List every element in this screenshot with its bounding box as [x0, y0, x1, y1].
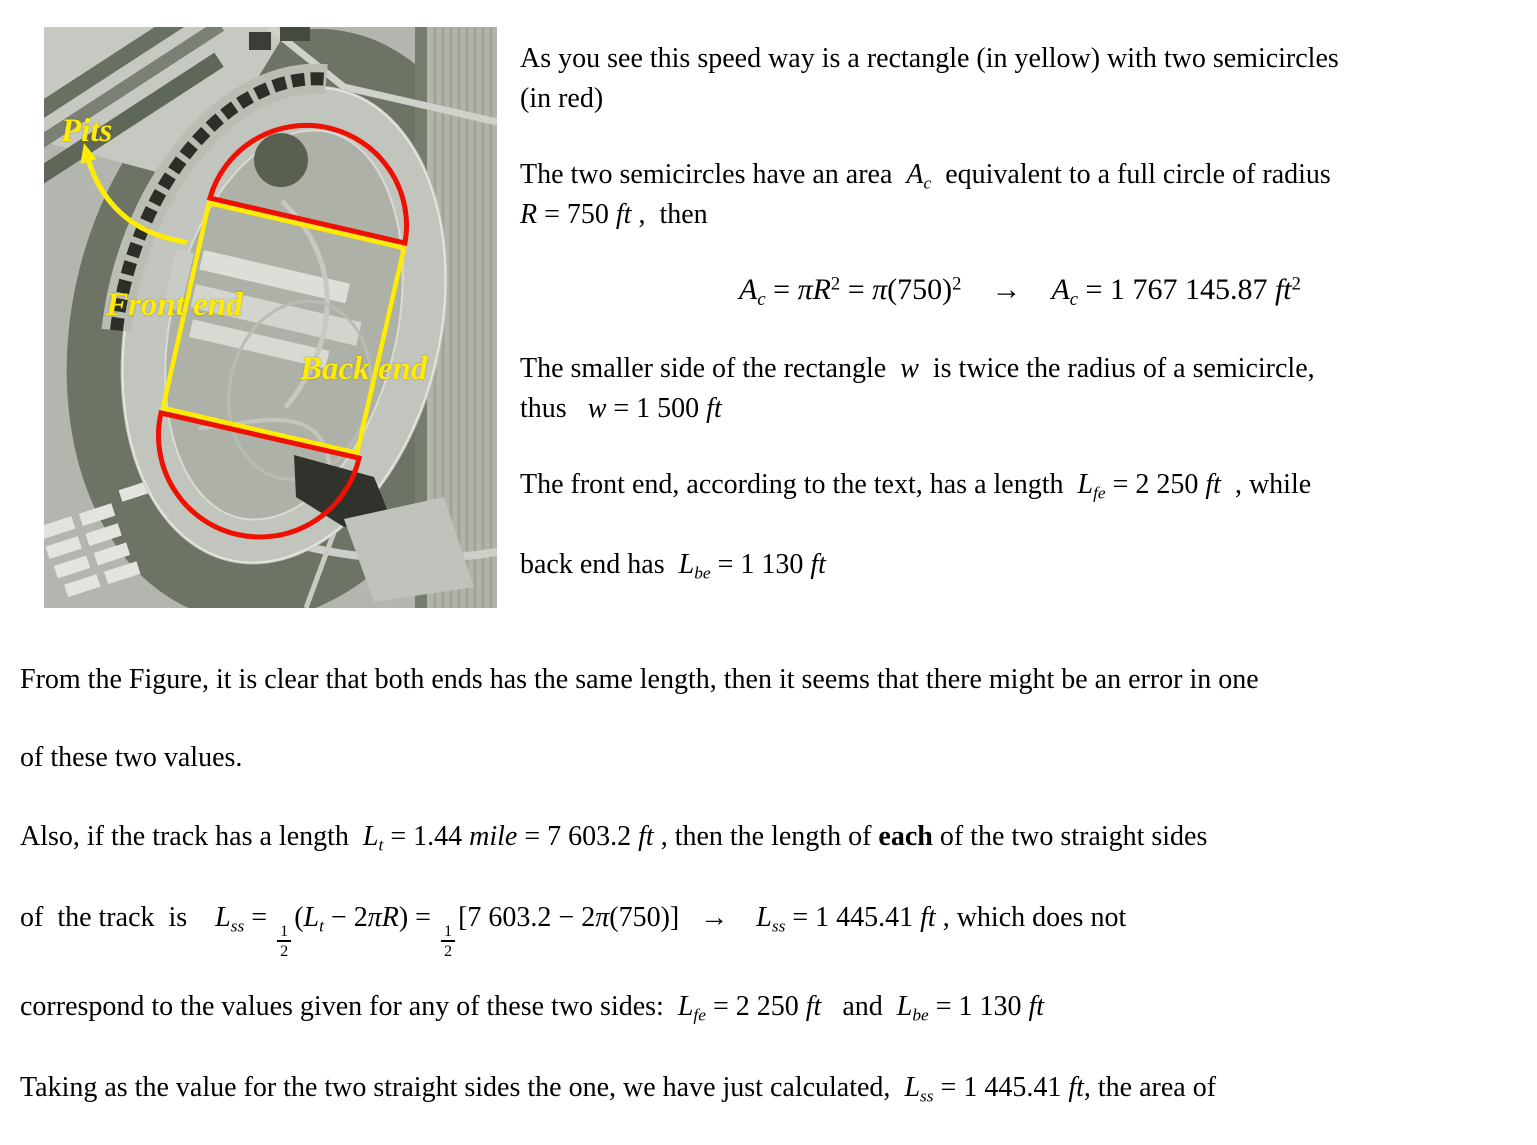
document-page: Pits Front end Back end As you see this … [0, 0, 1537, 1145]
text-segment: ft [810, 549, 826, 580]
text-segment: = [840, 273, 872, 306]
text-line-figure-remark-2: of these two values. [20, 741, 242, 775]
text-segment: equivalent to a full circle of radius [931, 159, 1331, 190]
text-segment: L [363, 821, 379, 852]
text-segment: w [900, 353, 919, 384]
text-segment: = 1 500 [606, 393, 706, 424]
text-line-tracklength-2: of the track is Lss = 12(Lt − 2πR) = 12[… [20, 901, 1126, 960]
text-segment: ft [1068, 1072, 1084, 1103]
text-segment: thus [520, 393, 588, 424]
text-segment: c [757, 289, 765, 310]
text-segment: L [756, 902, 772, 933]
text-line-semicircles-2: R = 750 ft , then [520, 198, 708, 232]
text-segment: ft [1205, 469, 1221, 500]
text-segment: , which does not [936, 902, 1127, 933]
pits-label: Pits [61, 115, 112, 148]
text-segment: As you see this speed way is a rectangle… [520, 43, 1339, 74]
text-line-backend: back end has Lbe = 1 130 ft [520, 548, 826, 584]
text-segment: mile [469, 821, 517, 852]
equation-area-circle: Ac = πR2 = π(750)2 → Ac = 1 767 145.87 f… [540, 272, 1500, 311]
text-segment: of these two values. [20, 742, 242, 773]
back-end-label: Back end [300, 353, 427, 386]
text-segment: L [215, 902, 231, 933]
text-segment: L [897, 991, 913, 1022]
text-segment: ) = [399, 902, 438, 933]
text-segment: 2 [1292, 274, 1301, 295]
text-segment: Taking as the value for the two straight… [20, 1072, 904, 1103]
building-top [249, 32, 271, 50]
text-segment: ft [638, 821, 654, 852]
text-segment: A [906, 159, 923, 190]
text-segment: = 1 445.41 [785, 902, 920, 933]
text-segment: w [588, 393, 607, 424]
text-line-tracklength-1: Also, if the track has a length Lt = 1.4… [20, 820, 1207, 856]
text-segment: The two semicircles have an area [520, 159, 906, 190]
speedway-aerial-figure: Pits Front end Back end [44, 27, 497, 608]
text-segment: ss [920, 1087, 934, 1106]
text-segment: be [694, 564, 710, 583]
text-line-intro-2: (in red) [520, 82, 603, 116]
text-segment: , while [1221, 469, 1311, 500]
text-segment: ft [920, 902, 936, 933]
text-segment: = 1 130 [711, 549, 811, 580]
text-segment: L [679, 549, 695, 580]
text-segment: ft [1029, 991, 1045, 1022]
text-segment: is twice the radius of a semicircle, [919, 353, 1315, 384]
text-line-tracklength-3: correspond to the values given for any o… [20, 990, 1044, 1026]
text-segment: ( [294, 902, 303, 933]
text-segment: L [1077, 469, 1093, 500]
text-segment: and [821, 991, 896, 1022]
text-segment: ss [231, 917, 245, 936]
text-segment: L [304, 902, 320, 933]
text-segment: correspond to the values given for any o… [20, 991, 678, 1022]
text-segment: be [912, 1006, 928, 1025]
text-segment: (750) [887, 273, 952, 306]
text-segment: − 2 [324, 902, 368, 933]
text-line-width-2: thus w = 1 500 ft [520, 392, 722, 426]
text-segment: , then [631, 199, 707, 230]
text-segment: = 2 250 [706, 991, 806, 1022]
text-segment: = 1 130 [929, 991, 1029, 1022]
text-segment: = 750 [537, 199, 616, 230]
text-segment: (750)] → [609, 902, 756, 933]
text-segment: ss [772, 917, 786, 936]
text-segment: → [961, 273, 1051, 306]
text-segment: = 1.44 [383, 821, 469, 852]
fraction: 12 [277, 923, 291, 959]
front-end-label: Front end [106, 289, 243, 322]
text-segment: ft [616, 199, 632, 230]
fraction: 12 [441, 923, 455, 959]
text-segment: back end has [520, 549, 679, 580]
text-segment: L [678, 991, 694, 1022]
text-segment: L [904, 1072, 920, 1103]
text-line-intro-1: As you see this speed way is a rectangle… [520, 42, 1339, 76]
text-segment: = [244, 902, 274, 933]
text-segment: each [878, 821, 932, 852]
text-segment: πR [798, 273, 831, 306]
text-segment: R [520, 199, 537, 230]
text-segment: (in red) [520, 83, 603, 114]
text-segment: The front end, according to the text, ha… [520, 469, 1077, 500]
text-segment: A [1051, 273, 1069, 306]
text-line-frontend: The front end, according to the text, ha… [520, 468, 1311, 504]
building-top2 [280, 27, 310, 41]
text-segment: The smaller side of the rectangle [520, 353, 900, 384]
text-segment: = 1 767 145.87 [1078, 273, 1275, 306]
text-segment: = 1 445.41 [934, 1072, 1069, 1103]
text-segment: [7 603.2 − 2 [458, 902, 595, 933]
text-segment: A [739, 273, 757, 306]
text-segment: π [872, 273, 887, 306]
text-line-figure-remark-1: From the Figure, it is clear that both e… [20, 663, 1259, 697]
text-segment: ft [706, 393, 722, 424]
text-line-width-1: The smaller side of the rectangle w is t… [520, 352, 1315, 386]
text-segment: = 2 250 [1106, 469, 1206, 500]
text-segment: of the two straight sides [933, 821, 1208, 852]
text-segment: , the area of [1084, 1072, 1216, 1103]
text-segment: π [595, 902, 609, 933]
text-segment: Also, if the track has a length [20, 821, 363, 852]
text-line-semicircles-1: The two semicircles have an area Ac equi… [520, 158, 1331, 194]
text-segment: of the track is [20, 902, 215, 933]
text-segment: ft [806, 991, 822, 1022]
text-segment: 2 [831, 274, 840, 295]
text-segment: πR [368, 902, 399, 933]
text-segment: ft [1275, 273, 1292, 306]
text-line-taking-value: Taking as the value for the two straight… [20, 1071, 1216, 1107]
text-segment: From the Figure, it is clear that both e… [20, 664, 1259, 695]
text-segment: , then the length of [654, 821, 879, 852]
text-segment: c [1070, 289, 1078, 310]
text-segment: fe [693, 1006, 706, 1025]
text-segment: fe [1093, 484, 1106, 503]
text-segment: = [766, 273, 798, 306]
text-segment: = 7 603.2 [517, 821, 638, 852]
